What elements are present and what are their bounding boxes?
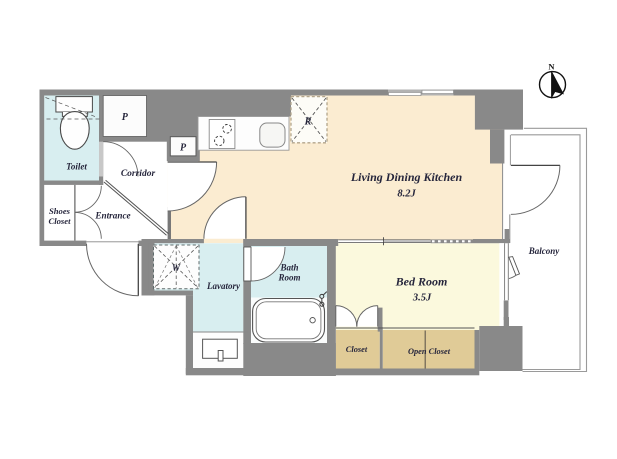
svg-text:Bed Room: Bed Room — [395, 275, 448, 289]
svg-text:Closet: Closet — [49, 216, 72, 226]
svg-text:Toilet: Toilet — [66, 162, 87, 172]
svg-text:Open Closet: Open Closet — [408, 347, 451, 356]
svg-text:Closet: Closet — [346, 345, 368, 354]
svg-text:P: P — [180, 143, 187, 154]
svg-text:N: N — [548, 62, 555, 72]
svg-text:Balcony: Balcony — [528, 246, 561, 256]
svg-text:Lavatory: Lavatory — [206, 281, 241, 291]
svg-text:8.2J: 8.2J — [397, 189, 416, 200]
svg-text:3.5J: 3.5J — [412, 293, 432, 304]
svg-text:Entrance: Entrance — [94, 210, 130, 220]
svg-text:Corridor: Corridor — [121, 169, 156, 179]
svg-text:Room: Room — [277, 273, 300, 283]
svg-text:P: P — [122, 112, 129, 123]
svg-text:Bath: Bath — [279, 263, 298, 273]
svg-text:W: W — [172, 263, 181, 273]
svg-text:R: R — [304, 117, 312, 128]
svg-text:Shoes: Shoes — [49, 206, 71, 216]
svg-text:Living Dining Kitchen: Living Dining Kitchen — [350, 170, 463, 184]
